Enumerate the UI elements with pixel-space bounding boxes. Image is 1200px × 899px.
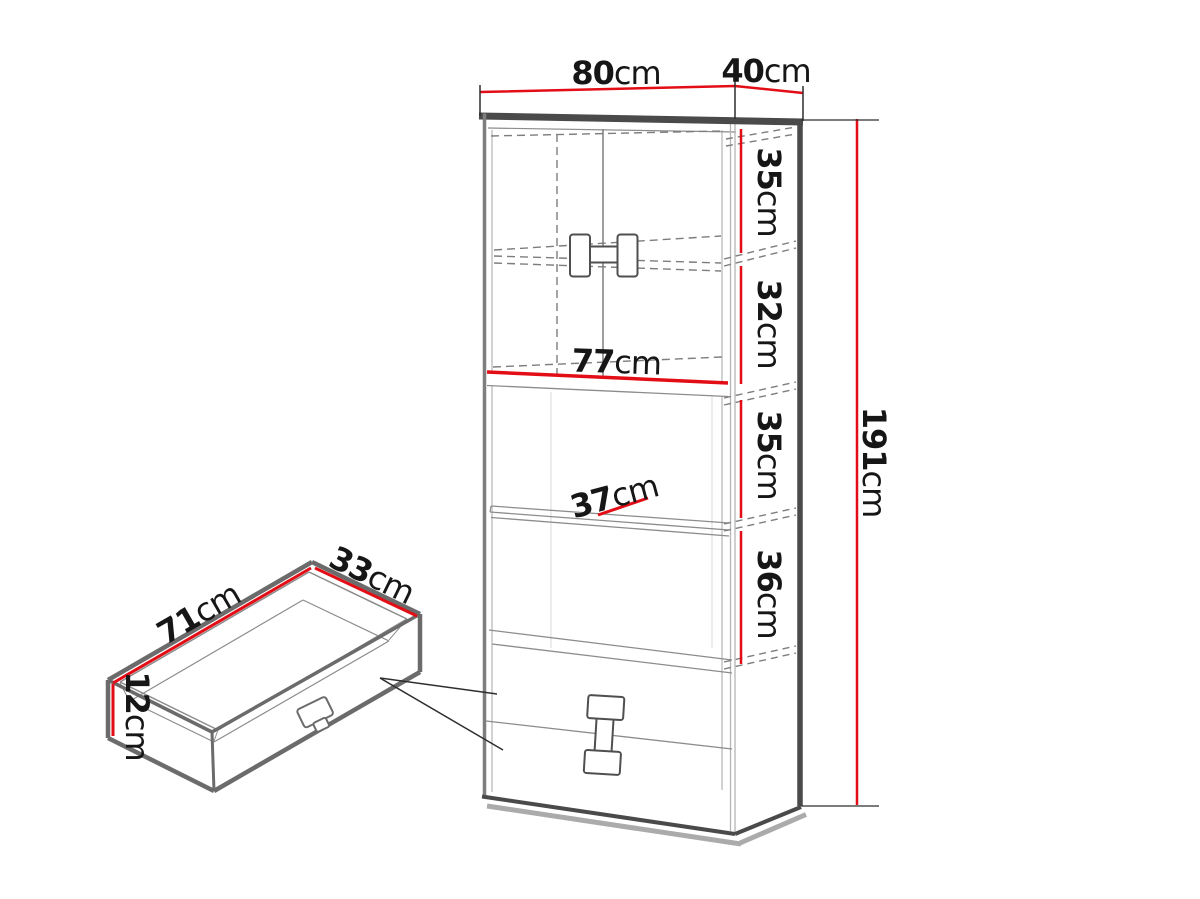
section-4-dimension-label: 36cm	[750, 549, 788, 638]
door-handle-bar[interactable]	[589, 247, 618, 263]
furniture-dimension-diagram: 80cm 40cm 191cm 35cm 32cm 35cm 36cm 77cm…	[0, 0, 1200, 899]
drawer-detail: 71cm 33cm 12cm	[108, 538, 420, 791]
drawer-handle-top-plate[interactable]	[587, 695, 624, 720]
drawer-handle-bottom-plate[interactable]	[584, 750, 621, 775]
drawer-height-dimension-label: 12cm	[118, 671, 156, 760]
door-handle-left[interactable]	[570, 235, 590, 277]
top-dimension: 80cm 40cm	[480, 52, 811, 121]
depth-dimension-label: 40cm	[721, 52, 810, 90]
section-1-dimension-label: 35cm	[750, 147, 788, 236]
section-3-dimension-label: 35cm	[750, 410, 788, 499]
inner-width-dimension-label: 77cm	[571, 341, 662, 382]
drawer-front-corner-edge	[212, 732, 214, 791]
height-dimension: 191cm	[801, 119, 893, 806]
width-dimension-label: 80cm	[571, 54, 660, 92]
door-handle-right[interactable]	[618, 235, 638, 277]
section-2-dimension-label: 32cm	[750, 279, 788, 368]
height-dimension-label: 191cm	[855, 407, 893, 518]
